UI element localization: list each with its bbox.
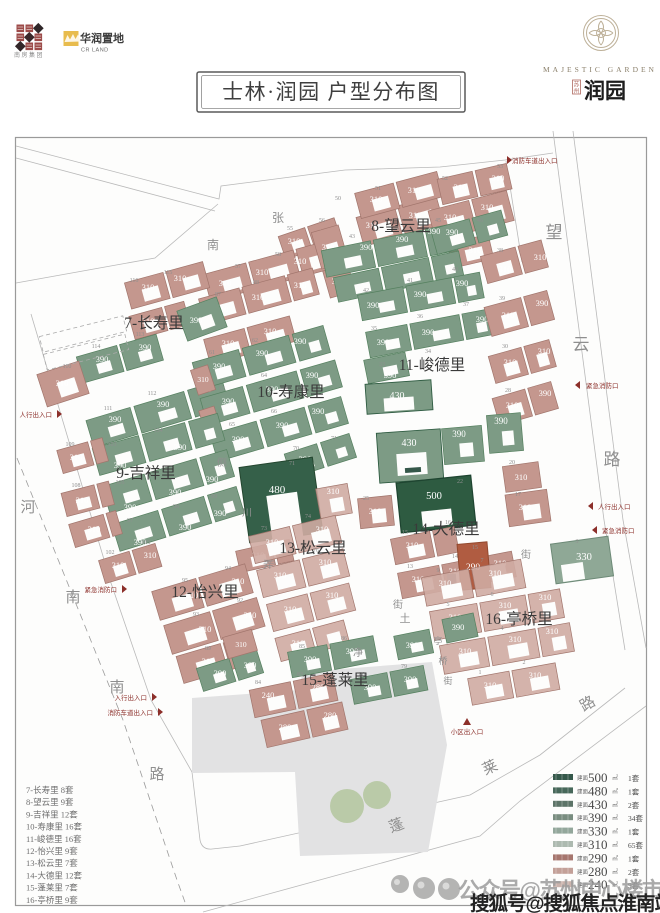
svg-text:25: 25 <box>363 496 369 502</box>
svg-text:张: 张 <box>272 211 284 225</box>
svg-text:川: 川 <box>242 508 252 519</box>
svg-text:390: 390 <box>446 227 459 237</box>
svg-text:建面: 建面 <box>577 828 589 836</box>
svg-text:310: 310 <box>484 680 497 690</box>
svg-text:17: 17 <box>515 492 521 498</box>
svg-text:310: 310 <box>370 194 383 204</box>
svg-text:390: 390 <box>169 487 182 497</box>
svg-text:8-望云里: 8-望云里 <box>371 217 430 235</box>
svg-text:南: 南 <box>109 679 124 696</box>
svg-text:㎡: ㎡ <box>612 854 618 862</box>
svg-text:路: 路 <box>149 766 164 783</box>
svg-text:310: 310 <box>509 634 522 644</box>
svg-text:路: 路 <box>604 450 621 469</box>
svg-text:苏: 苏 <box>573 81 579 89</box>
svg-text:15-蓬莱里 7套: 15-蓬莱里 7套 <box>26 883 78 893</box>
svg-text:310: 310 <box>274 570 287 580</box>
svg-text:侧: 侧 <box>217 456 227 469</box>
svg-text:74: 74 <box>305 514 311 520</box>
svg-text:㎡: ㎡ <box>612 774 618 782</box>
svg-text:310: 310 <box>515 472 528 482</box>
svg-text:310: 310 <box>284 604 297 614</box>
svg-text:390: 390 <box>312 406 325 416</box>
svg-text:390: 390 <box>256 348 269 358</box>
svg-text:310: 310 <box>144 550 157 560</box>
svg-text:310: 310 <box>406 540 419 550</box>
svg-text:街: 街 <box>443 675 452 686</box>
svg-text:310: 310 <box>76 495 89 505</box>
svg-text:桥: 桥 <box>438 655 447 666</box>
svg-text:85: 85 <box>299 644 305 650</box>
svg-text:53: 53 <box>497 164 503 170</box>
svg-text:街: 街 <box>393 598 403 611</box>
svg-text:7: 7 <box>481 558 484 564</box>
svg-text:390: 390 <box>190 315 203 325</box>
svg-text:41: 41 <box>407 278 413 284</box>
svg-text:280: 280 <box>324 710 337 720</box>
svg-text:望: 望 <box>546 223 563 242</box>
svg-text:16-亭桥里 9套: 16-亭桥里 9套 <box>26 895 78 905</box>
svg-text:310: 310 <box>316 524 329 534</box>
svg-text:430: 430 <box>390 391 405 402</box>
svg-text:南: 南 <box>65 589 80 606</box>
svg-text:13: 13 <box>407 564 413 570</box>
svg-text:89: 89 <box>205 646 211 652</box>
svg-text:14: 14 <box>452 554 458 560</box>
svg-text:84: 84 <box>255 680 261 686</box>
svg-text:消防车道出入口: 消防车道出入口 <box>108 708 154 717</box>
svg-text:亭: 亭 <box>433 635 442 646</box>
svg-text:310: 310 <box>469 245 482 255</box>
svg-text:3: 3 <box>576 539 579 545</box>
svg-text:310: 310 <box>294 256 307 266</box>
svg-text:88: 88 <box>253 280 259 286</box>
svg-text:390: 390 <box>109 414 122 424</box>
svg-text:建面: 建面 <box>577 854 589 862</box>
svg-text:12-怡兴里: 12-怡兴里 <box>171 583 238 601</box>
svg-text:112: 112 <box>148 391 157 397</box>
svg-text:390: 390 <box>422 327 435 337</box>
svg-text:390: 390 <box>304 654 317 664</box>
svg-text:净: 净 <box>353 646 363 659</box>
svg-text:390: 390 <box>294 336 307 346</box>
svg-text:㎡: ㎡ <box>612 814 618 822</box>
svg-text:240: 240 <box>262 690 275 700</box>
svg-text:11-峻德里 16套: 11-峻德里 16套 <box>26 834 82 844</box>
svg-text:310: 310 <box>504 357 517 367</box>
svg-text:70: 70 <box>293 446 299 452</box>
svg-text:搜狐号@搜狐焦点淮南站: 搜狐号@搜狐焦点淮南站 <box>470 892 660 913</box>
svg-text:入行出入口: 入行出入口 <box>115 693 148 702</box>
svg-text:㎡: ㎡ <box>612 801 618 809</box>
svg-text:39: 39 <box>499 296 505 302</box>
svg-text:310: 310 <box>56 378 69 388</box>
svg-text:390: 390 <box>157 399 170 409</box>
svg-text:94: 94 <box>225 566 231 572</box>
svg-text:9-吉祥里 12套: 9-吉祥里 12套 <box>26 809 78 819</box>
svg-text:390: 390 <box>124 502 137 512</box>
svg-text:南: 南 <box>207 237 219 252</box>
svg-text:310: 310 <box>219 278 232 288</box>
svg-text:紧急消防口: 紧急消防口 <box>602 526 635 535</box>
svg-text:建面: 建面 <box>577 774 589 782</box>
svg-text:86: 86 <box>341 636 347 642</box>
svg-text:街: 街 <box>521 548 531 561</box>
svg-text:50: 50 <box>335 196 341 202</box>
svg-text:51: 51 <box>375 186 381 192</box>
svg-text:6: 6 <box>491 592 494 598</box>
svg-text:390: 390 <box>406 640 419 650</box>
svg-text:310: 310 <box>529 670 542 680</box>
svg-text:38: 38 <box>497 248 503 254</box>
svg-text:16-亭桥里: 16-亭桥里 <box>485 610 552 628</box>
svg-text:310: 310 <box>326 590 339 600</box>
svg-text:人行出入口: 人行出入口 <box>20 410 53 419</box>
svg-text:㎡: ㎡ <box>612 828 618 836</box>
svg-text:310: 310 <box>199 624 212 634</box>
svg-text:102: 102 <box>106 550 115 556</box>
svg-text:310: 310 <box>502 310 515 320</box>
svg-text:310: 310 <box>222 338 235 348</box>
svg-text:114: 114 <box>92 344 101 350</box>
svg-text:河: 河 <box>20 499 35 516</box>
svg-text:310: 310 <box>534 252 547 262</box>
svg-text:310: 310 <box>266 537 279 547</box>
svg-text:弄: 弄 <box>263 559 273 571</box>
svg-text:390: 390 <box>384 370 397 380</box>
svg-text:116: 116 <box>130 278 139 284</box>
svg-text:113: 113 <box>136 332 145 338</box>
svg-text:310: 310 <box>519 502 532 512</box>
svg-text:310: 310 <box>539 592 552 602</box>
svg-text:建面: 建面 <box>577 814 589 822</box>
svg-text:310: 310 <box>197 375 209 384</box>
svg-text:15: 15 <box>472 545 478 551</box>
svg-text:润园: 润园 <box>584 79 626 103</box>
svg-text:98: 98 <box>173 504 179 510</box>
svg-text:390: 390 <box>377 337 390 347</box>
svg-text:390: 390 <box>404 674 417 684</box>
svg-text:㎡: ㎡ <box>612 787 618 795</box>
svg-text:104: 104 <box>154 428 163 434</box>
svg-text:101: 101 <box>142 540 151 546</box>
svg-text:1套: 1套 <box>628 786 640 796</box>
svg-text:45: 45 <box>435 218 441 224</box>
svg-text:28: 28 <box>505 388 511 394</box>
svg-text:建面: 建面 <box>577 868 589 876</box>
svg-text:61: 61 <box>209 350 215 356</box>
svg-text:310: 310 <box>256 267 269 277</box>
svg-text:15-蓬莱里: 15-蓬莱里 <box>301 671 368 689</box>
svg-text:22: 22 <box>457 479 463 485</box>
svg-text:310: 310 <box>459 646 472 656</box>
svg-text:99: 99 <box>211 494 217 500</box>
svg-text:310: 310 <box>489 568 502 578</box>
svg-text:42: 42 <box>363 288 369 294</box>
svg-text:310: 310 <box>88 524 101 534</box>
svg-text:310: 310 <box>439 578 452 588</box>
svg-text:小区出入口: 小区出入口 <box>451 727 484 736</box>
svg-text:390: 390 <box>206 474 219 484</box>
svg-text:MAJESTIC GARDEN: MAJESTIC GARDEN <box>543 65 657 74</box>
svg-text:310: 310 <box>481 202 494 212</box>
svg-text:1套: 1套 <box>628 853 640 863</box>
svg-text:111: 111 <box>104 406 113 412</box>
svg-text:20: 20 <box>509 460 515 466</box>
svg-text:43: 43 <box>349 234 355 240</box>
svg-text:62: 62 <box>252 338 258 344</box>
svg-text:390: 390 <box>396 234 409 244</box>
svg-text:2套: 2套 <box>628 800 640 810</box>
svg-text:63: 63 <box>219 386 225 392</box>
svg-text:71: 71 <box>289 461 295 467</box>
svg-text:紧急消防口: 紧急消防口 <box>586 381 619 390</box>
svg-text:10-寿康里 16套: 10-寿康里 16套 <box>26 822 82 832</box>
svg-text:建面: 建面 <box>577 801 589 809</box>
svg-text:109: 109 <box>66 442 75 448</box>
svg-text:58: 58 <box>275 252 281 258</box>
svg-text:310: 310 <box>327 486 340 496</box>
svg-text:36: 36 <box>417 314 423 320</box>
svg-text:390: 390 <box>213 361 226 371</box>
svg-text:65: 65 <box>229 422 235 428</box>
svg-text:108: 108 <box>72 483 81 489</box>
svg-text:390: 390 <box>452 622 465 632</box>
svg-text:390: 390 <box>360 242 373 252</box>
svg-text:1套: 1套 <box>628 773 640 783</box>
svg-text:紧急消防口: 紧急消防口 <box>85 585 118 594</box>
svg-text:280: 280 <box>279 722 292 732</box>
svg-text:建面: 建面 <box>577 787 589 795</box>
svg-text:390: 390 <box>456 278 469 288</box>
svg-text:1: 1 <box>479 670 482 676</box>
svg-text:消防车道出入口: 消防车道出入口 <box>512 156 558 165</box>
svg-text:34: 34 <box>425 349 431 355</box>
svg-text:480: 480 <box>269 484 286 496</box>
svg-text:71: 71 <box>331 436 337 442</box>
svg-text:7-长寿里: 7-长寿里 <box>124 314 183 332</box>
svg-text:10-寿康里: 10-寿康里 <box>257 383 324 401</box>
svg-text:115: 115 <box>164 270 173 276</box>
svg-text:93: 93 <box>193 612 199 618</box>
svg-text:12-怡兴里 9套: 12-怡兴里 9套 <box>26 846 78 856</box>
svg-text:310: 310 <box>492 173 505 183</box>
svg-text:1套: 1套 <box>628 827 640 837</box>
svg-text:13-松云里 7套: 13-松云里 7套 <box>26 858 78 868</box>
svg-text:35: 35 <box>371 326 377 332</box>
svg-text:52: 52 <box>442 176 448 182</box>
svg-text:500: 500 <box>426 491 442 502</box>
svg-text:390: 390 <box>306 370 319 380</box>
svg-text:310: 310 <box>244 610 257 620</box>
svg-text:9-吉祥里: 9-吉祥里 <box>116 464 175 482</box>
svg-text:310: 310 <box>235 640 247 649</box>
svg-text:66: 66 <box>271 409 277 415</box>
svg-text:390: 390 <box>139 342 152 352</box>
svg-text:310: 310 <box>142 282 155 292</box>
svg-text:34套: 34套 <box>628 813 644 823</box>
svg-text:华润置地: 华润置地 <box>80 31 124 45</box>
svg-text:55: 55 <box>287 226 293 232</box>
svg-text:390: 390 <box>179 522 192 532</box>
svg-text:390: 390 <box>452 429 466 439</box>
svg-text:310: 310 <box>506 400 519 410</box>
svg-text:9: 9 <box>437 568 440 574</box>
svg-text:人行出入口: 人行出入口 <box>598 502 631 511</box>
svg-text:8-望云里 9套: 8-望云里 9套 <box>26 797 74 807</box>
svg-text:士林·润园 户型分布图: 士林·润园 户型分布图 <box>222 80 440 104</box>
svg-text:390: 390 <box>222 396 235 406</box>
svg-text:310: 310 <box>70 452 83 462</box>
svg-text:土: 土 <box>400 612 411 625</box>
svg-text:11-峻德里: 11-峻德里 <box>399 356 466 374</box>
svg-text:2套: 2套 <box>628 867 640 877</box>
svg-text:310: 310 <box>499 600 512 610</box>
svg-text:57: 57 <box>235 264 241 270</box>
svg-text:310: 310 <box>538 346 551 356</box>
svg-text:州: 州 <box>573 88 579 95</box>
svg-text:310: 310 <box>499 264 512 274</box>
svg-text:310: 310 <box>112 560 125 570</box>
svg-text:CR LAND: CR LAND <box>81 48 109 54</box>
svg-text:390: 390 <box>539 388 552 398</box>
svg-text:390: 390 <box>174 442 187 452</box>
svg-text:40: 40 <box>452 267 458 273</box>
svg-text:390: 390 <box>214 668 227 678</box>
svg-text:390: 390 <box>276 420 289 430</box>
svg-text:390: 390 <box>367 300 380 310</box>
svg-text:7-长寿里 8套: 7-长寿里 8套 <box>26 785 74 795</box>
svg-text:390: 390 <box>214 508 227 518</box>
svg-text:310: 310 <box>174 273 187 283</box>
svg-text:37: 37 <box>463 302 469 308</box>
svg-text:390: 390 <box>414 289 427 299</box>
svg-text:310: 310 <box>369 506 382 516</box>
svg-text:73: 73 <box>261 526 267 532</box>
svg-text:310: 310 <box>264 326 277 336</box>
svg-text:310: 310 <box>454 182 467 192</box>
svg-text:310: 310 <box>408 185 421 195</box>
svg-text:330: 330 <box>576 552 592 563</box>
svg-text:㎡: ㎡ <box>612 841 618 849</box>
svg-text:建面: 建面 <box>577 841 589 849</box>
svg-text:310: 310 <box>252 292 265 302</box>
svg-text:97: 97 <box>127 518 133 524</box>
svg-text:30: 30 <box>502 344 508 350</box>
svg-text:云: 云 <box>573 335 590 354</box>
svg-text:79: 79 <box>401 664 407 670</box>
svg-text:310: 310 <box>294 280 307 290</box>
svg-text:390: 390 <box>244 660 257 670</box>
svg-text:310: 310 <box>319 557 332 567</box>
svg-text:13-松云里: 13-松云里 <box>279 539 346 557</box>
svg-text:390: 390 <box>536 298 549 308</box>
svg-text:46: 46 <box>477 218 483 224</box>
svg-text:5: 5 <box>447 602 450 608</box>
svg-text:㎡: ㎡ <box>612 868 618 876</box>
svg-text:390: 390 <box>232 434 245 444</box>
svg-text:390: 390 <box>494 416 508 426</box>
svg-text:310: 310 <box>444 212 457 222</box>
svg-text:14-大德里 12套: 14-大德里 12套 <box>26 870 82 880</box>
svg-text:南房集团: 南房集团 <box>14 51 44 59</box>
svg-text:65套: 65套 <box>628 840 644 850</box>
svg-text:15: 15 <box>402 530 408 536</box>
svg-text:56: 56 <box>319 218 325 224</box>
svg-text:103: 103 <box>108 442 117 448</box>
svg-text:14-大德里: 14-大德里 <box>412 520 479 538</box>
svg-text:64: 64 <box>261 373 267 379</box>
svg-text:430: 430 <box>402 438 417 449</box>
svg-text:2: 2 <box>523 660 526 666</box>
svg-text:310: 310 <box>288 236 301 246</box>
svg-text:33: 33 <box>379 362 385 368</box>
